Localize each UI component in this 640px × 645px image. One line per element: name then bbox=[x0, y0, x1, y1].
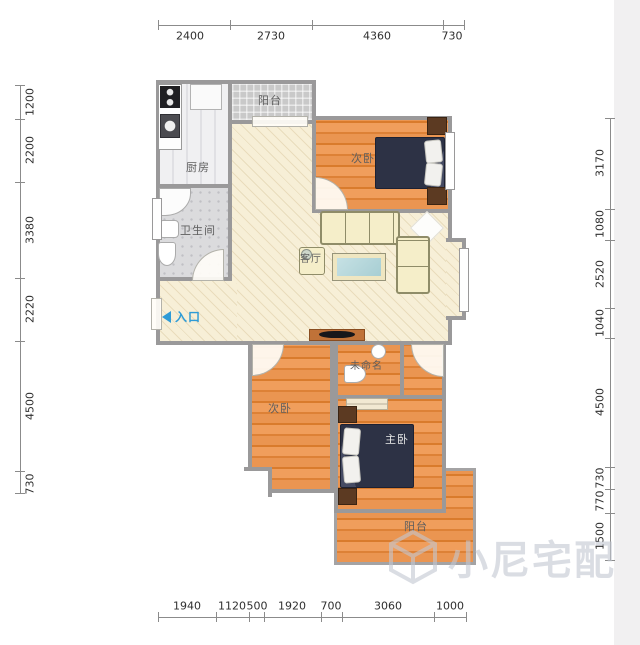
toilet-icon bbox=[158, 242, 176, 266]
dim-tick bbox=[605, 467, 615, 468]
dim-label: 4500 bbox=[24, 392, 37, 420]
pillow-icon bbox=[342, 427, 361, 455]
dim-label: 4500 bbox=[594, 388, 607, 416]
dim-tick bbox=[15, 278, 25, 279]
room-label-bedroom-top: 次卧 bbox=[351, 150, 375, 166]
dim-label: 700 bbox=[321, 600, 342, 613]
dim-tick bbox=[249, 612, 250, 622]
dim-tick bbox=[15, 182, 25, 183]
dim-tick bbox=[605, 240, 615, 241]
fridge-icon bbox=[190, 84, 222, 110]
room-label-kitchen: 厨房 bbox=[186, 159, 210, 175]
dim-label: 1940 bbox=[173, 600, 201, 613]
room-label-bathroom: 卫生间 bbox=[180, 222, 216, 238]
dim-label: 3170 bbox=[594, 149, 607, 177]
dim-tick bbox=[605, 338, 615, 339]
dim-label: 2520 bbox=[594, 260, 607, 288]
sofa-two-seat bbox=[396, 236, 430, 294]
dim-tick bbox=[466, 612, 467, 622]
room-label-master: 主卧 bbox=[385, 431, 409, 447]
bedroom-left-notch bbox=[244, 467, 272, 497]
dim-tick bbox=[605, 209, 615, 210]
dim-line-left bbox=[20, 85, 21, 493]
dim-tick bbox=[158, 612, 159, 622]
dim-label: 730 bbox=[24, 474, 37, 495]
pillow-icon bbox=[424, 162, 443, 187]
dim-tick bbox=[15, 85, 25, 86]
nightstand-icon bbox=[338, 406, 357, 423]
dim-label: 1920 bbox=[278, 600, 306, 613]
nightstand-icon bbox=[427, 117, 447, 135]
dim-label: 1080 bbox=[594, 210, 607, 238]
pillow-icon bbox=[424, 139, 443, 164]
sofa-three-seat bbox=[320, 211, 400, 245]
dim-tick bbox=[434, 612, 435, 622]
stove-icon bbox=[160, 86, 180, 108]
dim-label: 730 bbox=[594, 468, 607, 489]
dim-label: 1200 bbox=[24, 88, 37, 116]
room-label-living: 客厅 bbox=[300, 250, 322, 265]
dim-tick bbox=[464, 20, 465, 30]
dim-tick bbox=[216, 612, 217, 622]
dim-tick bbox=[230, 20, 231, 30]
dim-tick bbox=[605, 513, 615, 514]
dim-tick bbox=[15, 119, 25, 120]
dim-tick bbox=[605, 308, 615, 309]
dim-label: 2400 bbox=[176, 30, 204, 43]
balcony-sliding-door bbox=[252, 116, 308, 127]
dim-tick bbox=[321, 612, 322, 622]
floor-plan: 2400 2730 4360 730 1200 2200 3380 2220 4… bbox=[0, 0, 640, 645]
dim-line-right bbox=[610, 118, 611, 560]
dim-tick bbox=[342, 612, 343, 622]
dim-tick bbox=[605, 118, 615, 119]
kitchen-sink-icon bbox=[160, 114, 180, 138]
tv-icon bbox=[319, 331, 355, 338]
dim-tick bbox=[312, 20, 313, 30]
entrance-label: 入口 bbox=[175, 308, 201, 325]
dim-line-bottom bbox=[158, 617, 467, 618]
entrance-door bbox=[151, 298, 162, 330]
dim-label: 1120 bbox=[218, 600, 246, 613]
room-label-bedroom-left: 次卧 bbox=[268, 400, 292, 416]
watermark-cube-logo-icon bbox=[388, 529, 438, 585]
bathroom-window-icon bbox=[152, 198, 162, 240]
dim-tick bbox=[605, 489, 615, 490]
dim-label: 4360 bbox=[363, 30, 391, 43]
dim-label: 3060 bbox=[374, 600, 402, 613]
nightstand-icon bbox=[338, 488, 357, 505]
dim-label: 3380 bbox=[24, 216, 37, 244]
washbasin-icon bbox=[159, 220, 179, 238]
pillow-icon bbox=[342, 455, 361, 483]
dim-label: 2730 bbox=[257, 30, 285, 43]
dim-label: 730 bbox=[442, 30, 463, 43]
dim-tick bbox=[15, 471, 25, 472]
entrance-arrow-icon bbox=[162, 311, 171, 323]
dim-tick bbox=[15, 341, 25, 342]
page-edge-band bbox=[614, 0, 640, 645]
dim-tick bbox=[443, 20, 444, 30]
nightstand-icon bbox=[427, 187, 447, 205]
dim-label: 1000 bbox=[436, 600, 464, 613]
dim-label: 2200 bbox=[24, 136, 37, 164]
bay-window-glass-icon bbox=[459, 248, 469, 312]
coffee-table bbox=[333, 254, 385, 280]
dim-tick bbox=[158, 20, 159, 30]
dim-label: 770 bbox=[594, 491, 607, 512]
floor-patch bbox=[228, 283, 237, 341]
watermark-text: 小尼宅配 bbox=[448, 528, 616, 586]
dim-label: 2220 bbox=[24, 295, 37, 323]
dim-label: 500 bbox=[247, 600, 268, 613]
watermark: 小尼宅配 bbox=[388, 528, 616, 586]
dim-label: 1040 bbox=[594, 309, 607, 337]
room-label-unnamed: 未命名 bbox=[350, 357, 383, 372]
room-label-balcony-top: 阳台 bbox=[258, 92, 282, 108]
bedroom-top-window-icon bbox=[445, 132, 455, 190]
dim-tick bbox=[264, 612, 265, 622]
